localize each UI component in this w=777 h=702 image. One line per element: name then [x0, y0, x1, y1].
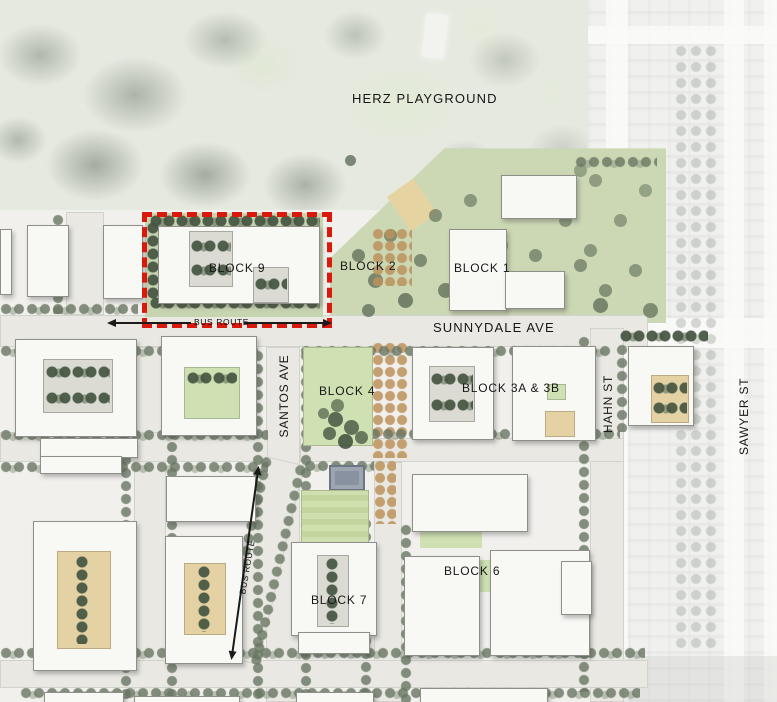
- building-block7: [291, 542, 377, 636]
- label-block7: BLOCK 7: [311, 593, 367, 607]
- building-block1-wing: [505, 271, 565, 309]
- tree-column: [198, 566, 211, 632]
- tree-row: [0, 303, 138, 316]
- sports-court: [329, 465, 365, 491]
- block3b-courtyard: [545, 411, 575, 437]
- building-left-a: [15, 339, 137, 437]
- label-sunnydale-ave: SUNNYDALE AVE: [433, 320, 555, 335]
- tree-row: [431, 399, 473, 412]
- label-block9: BLOCK 9: [209, 261, 265, 275]
- label-sawyer-st: SAWYER ST: [737, 379, 751, 455]
- building: [103, 225, 143, 299]
- bus-route-arrow-down: [227, 651, 236, 661]
- block7-courtyard: [317, 555, 349, 627]
- tree-row: [653, 402, 687, 415]
- tree-row: [575, 156, 657, 169]
- bus-route-label: BUS ROUTE: [194, 317, 249, 327]
- building: [296, 692, 374, 702]
- building: [134, 696, 240, 702]
- building: [420, 688, 548, 702]
- site-plan-map: BUS ROUTE BUS ROUTE HERZ PLAYGROUND BLOC…: [0, 0, 777, 702]
- label-block3ab: BLOCK 3A & 3B: [462, 381, 560, 395]
- label-herz-playground: HERZ PLAYGROUND: [352, 91, 498, 106]
- label-block2: BLOCK 2: [340, 259, 396, 273]
- label-block4: BLOCK 4: [319, 384, 375, 398]
- tree-row: [187, 372, 237, 385]
- building-left-b: [161, 336, 257, 436]
- courtyard-tan: [57, 551, 111, 649]
- courtyard: [43, 359, 113, 413]
- block4-trees: [318, 408, 329, 419]
- building-block7-wing: [298, 632, 370, 654]
- street-upper-left-vertical: [66, 212, 104, 315]
- bus-route-arrow-up: [253, 465, 262, 475]
- bus-route-line: [244, 322, 324, 324]
- tree-column: [76, 556, 89, 644]
- tree-row: [46, 392, 110, 405]
- park-tree-cluster: [345, 155, 356, 166]
- bus-route-line: [115, 322, 191, 324]
- building: [0, 229, 12, 295]
- building-left-b-low: [166, 476, 256, 522]
- building-near-hahn: [561, 561, 592, 615]
- label-block1: BLOCK 1: [454, 261, 510, 275]
- building: [27, 225, 69, 297]
- label-block6: BLOCK 6: [444, 564, 500, 578]
- building-left-a-low: [40, 438, 138, 458]
- courtyard-green: [184, 367, 240, 419]
- building-left-a-low: [40, 456, 122, 474]
- courtyard-tan: [651, 375, 689, 423]
- block6-green: [420, 530, 482, 548]
- building-left-c: [33, 521, 137, 671]
- tree-row: [46, 366, 110, 379]
- building: [44, 692, 124, 702]
- orchard-block4-east-lower: [374, 460, 396, 524]
- building-block6-north: [412, 474, 528, 532]
- label-santos-ave: SANTOS AVE: [277, 351, 291, 441]
- bus-route-arrow-right: [323, 319, 332, 327]
- orchard-block2: [372, 228, 412, 286]
- tree-row: [620, 330, 708, 343]
- building-north-of-block1: [501, 175, 577, 219]
- tree-row: [653, 382, 687, 395]
- tree-column: [326, 558, 339, 624]
- park-structure: [421, 13, 448, 59]
- label-hahn-st: HAHN ST: [601, 374, 615, 434]
- building-left-d: [165, 536, 243, 664]
- sports-field: [301, 490, 369, 544]
- courtyard-tan: [184, 563, 226, 635]
- building-east-of-hahn: [628, 346, 694, 426]
